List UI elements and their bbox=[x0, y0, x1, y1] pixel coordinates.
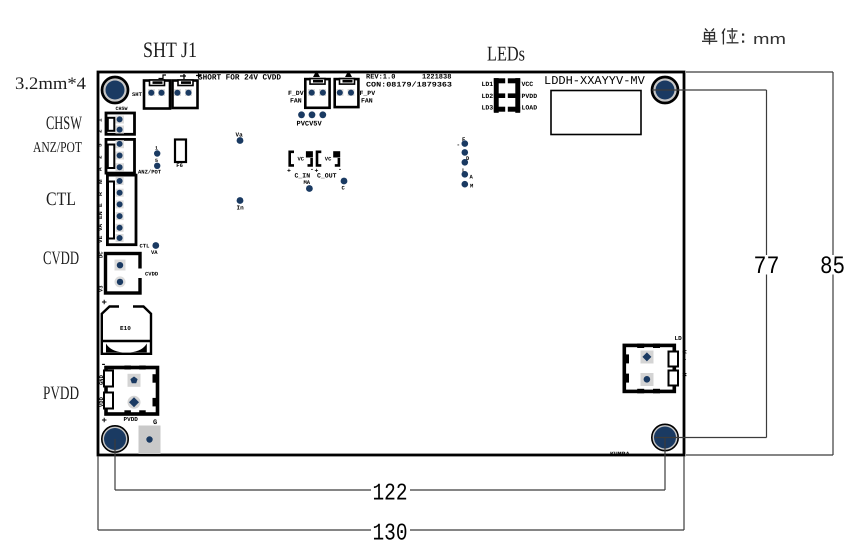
svg-text:V3: V3 bbox=[98, 285, 105, 292]
svg-text:F_PV: F_PV bbox=[360, 90, 376, 97]
svg-text:DC: DC bbox=[98, 251, 105, 258]
svg-text:LD1: LD1 bbox=[482, 81, 494, 88]
svg-text:F_DV: F_DV bbox=[288, 90, 304, 97]
svg-text:1221838: 1221838 bbox=[422, 74, 451, 82]
svg-text:LOAD: LOAD bbox=[522, 105, 538, 112]
svg-text:KUMBA: KUMBA bbox=[610, 451, 630, 458]
svg-text:85: 85 bbox=[820, 252, 845, 281]
svg-text:In: In bbox=[237, 205, 245, 212]
svg-text:CTL: CTL bbox=[46, 189, 76, 210]
svg-text:PVCV5V: PVCV5V bbox=[297, 121, 323, 129]
svg-text:2: 2 bbox=[97, 155, 104, 159]
svg-text:GND: GND bbox=[98, 374, 105, 385]
svg-text:LD2: LD2 bbox=[482, 93, 494, 100]
svg-text:VA: VA bbox=[151, 249, 158, 256]
svg-text:R: R bbox=[98, 192, 104, 196]
svg-text:G: G bbox=[153, 419, 157, 427]
svg-text:PVDD: PVDD bbox=[522, 93, 538, 100]
svg-text:LDDH-XXAYYV-MV: LDDH-XXAYYV-MV bbox=[544, 74, 646, 88]
svg-text:M: M bbox=[98, 179, 104, 184]
svg-text:C_OUT: C_OUT bbox=[317, 173, 337, 180]
svg-text:VC: VC bbox=[325, 156, 332, 163]
svg-text:LD: LD bbox=[675, 335, 683, 342]
svg-text:3.2mm*4: 3.2mm*4 bbox=[15, 73, 86, 93]
svg-text:CTL: CTL bbox=[140, 243, 151, 250]
svg-text:E: E bbox=[98, 203, 104, 207]
svg-text:2: 2 bbox=[97, 129, 104, 133]
svg-text:CVDD: CVDD bbox=[145, 271, 159, 278]
svg-text:LEDs: LEDs bbox=[487, 42, 525, 66]
svg-text:VDD: VDD bbox=[98, 396, 105, 407]
svg-text:SHORT FOR 24V CVDD: SHORT FOR 24V CVDD bbox=[198, 74, 281, 83]
svg-text:VCC: VCC bbox=[522, 81, 534, 88]
svg-text:130: 130 bbox=[373, 521, 408, 547]
svg-text:VA: VA bbox=[98, 224, 104, 231]
svg-text:ANZ/POT: ANZ/POT bbox=[33, 140, 82, 156]
svg-text:77: 77 bbox=[754, 252, 780, 281]
svg-text:FAN: FAN bbox=[290, 98, 302, 105]
svg-text:CVDD: CVDD bbox=[43, 248, 79, 269]
svg-text:+: + bbox=[102, 416, 107, 426]
svg-text:CHSW: CHSW bbox=[116, 106, 128, 112]
svg-text:VC: VC bbox=[298, 156, 305, 163]
svg-text:VE: VE bbox=[98, 235, 104, 243]
svg-text:+: + bbox=[102, 298, 107, 308]
svg-text:SHT: SHT bbox=[132, 91, 143, 98]
svg-text:F6: F6 bbox=[176, 162, 183, 169]
svg-text:A: A bbox=[97, 167, 104, 171]
svg-text:REV:1.0: REV:1.0 bbox=[366, 74, 395, 82]
svg-text:-: - bbox=[457, 142, 461, 149]
svg-text:E10: E10 bbox=[120, 325, 131, 332]
svg-text:-: - bbox=[310, 166, 314, 173]
svg-text:SHT J1: SHT J1 bbox=[143, 37, 197, 62]
svg-text:5: 5 bbox=[97, 143, 104, 147]
svg-text:ANZ/POT: ANZ/POT bbox=[138, 169, 162, 176]
svg-text:122: 122 bbox=[373, 481, 408, 508]
svg-text:EN: EN bbox=[98, 211, 104, 219]
svg-text:LD3: LD3 bbox=[482, 105, 494, 112]
svg-text:FAN: FAN bbox=[361, 98, 373, 105]
svg-text:PVDD: PVDD bbox=[124, 416, 139, 423]
svg-text:1: 1 bbox=[97, 118, 104, 122]
svg-text:mm: mm bbox=[753, 31, 786, 48]
svg-text:+: + bbox=[287, 168, 291, 175]
svg-text:PVDD: PVDD bbox=[43, 383, 79, 404]
svg-text:CON:08179/1879363: CON:08179/1879363 bbox=[366, 81, 452, 90]
svg-text:MA: MA bbox=[304, 179, 311, 186]
svg-text:-: - bbox=[338, 166, 342, 173]
svg-text:CHSW: CHSW bbox=[46, 113, 82, 134]
